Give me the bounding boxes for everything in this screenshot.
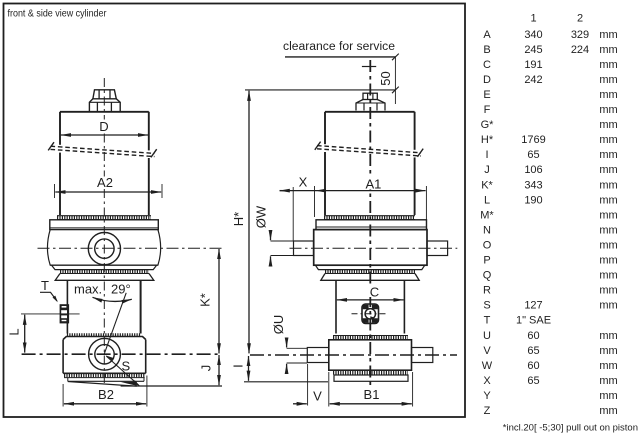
svg-text:mm: mm [599,209,617,221]
svg-text:H*: H* [481,134,494,146]
svg-text:E: E [483,89,490,101]
svg-text:max.: max. [74,282,102,297]
svg-text:mm: mm [599,194,617,206]
svg-text:mm: mm [599,375,617,387]
svg-text:U: U [483,330,491,342]
svg-text:mm: mm [599,44,617,56]
svg-text:mm: mm [599,360,617,372]
svg-text:A1: A1 [365,176,381,191]
svg-text:mm: mm [599,134,617,146]
svg-text:X: X [299,175,308,190]
svg-text:343: 343 [524,179,542,191]
svg-text:B1: B1 [364,387,380,402]
svg-text:mm: mm [599,179,617,191]
svg-text:mm: mm [599,240,617,252]
svg-text:B: B [483,44,490,56]
svg-text:329: 329 [571,29,589,41]
svg-text:29°: 29° [111,282,131,297]
svg-text:mm: mm [599,224,617,236]
svg-text:S: S [122,359,131,374]
svg-text:mm: mm [599,29,617,41]
svg-text:I: I [230,364,245,368]
svg-text:mm: mm [599,119,617,131]
svg-text:G*: G* [481,119,495,131]
svg-text:60: 60 [527,360,539,372]
svg-text:front & side view cylinder: front & side view cylinder [8,8,107,20]
svg-text:mm: mm [599,59,617,71]
svg-text:191: 191 [524,59,542,71]
svg-text:D: D [99,119,108,134]
svg-text:mm: mm [599,285,617,297]
svg-text:I: I [485,149,488,161]
svg-text:1769: 1769 [521,134,545,146]
svg-text:65: 65 [527,375,539,387]
svg-text:50: 50 [378,71,393,85]
svg-text:ØW: ØW [253,205,268,228]
svg-text:P: P [483,255,490,267]
svg-text:*incl.20[ -5;30] pull out on p: *incl.20[ -5;30] pull out on piston [503,423,638,434]
svg-text:O: O [483,240,492,252]
svg-text:mm: mm [599,74,617,86]
svg-text:X: X [483,375,491,387]
svg-text:B2: B2 [98,387,114,402]
svg-text:V: V [483,345,491,357]
svg-text:242: 242 [524,74,542,86]
svg-text:340: 340 [524,29,542,41]
svg-text:65: 65 [527,345,539,357]
svg-text:65: 65 [527,149,539,161]
svg-text:S: S [483,300,490,312]
svg-text:224: 224 [571,44,589,56]
svg-text:2: 2 [577,13,583,25]
svg-text:W: W [482,360,493,372]
svg-text:A: A [483,29,491,41]
svg-text:60: 60 [527,330,539,342]
svg-text:T: T [484,315,491,327]
svg-text:M*: M* [480,209,494,221]
svg-text:mm: mm [599,270,617,282]
svg-text:K*: K* [481,179,493,191]
svg-text:106: 106 [524,164,542,176]
svg-text:C: C [483,59,491,71]
svg-text:245: 245 [524,44,542,56]
svg-text:A2: A2 [97,175,113,190]
svg-text:mm: mm [599,330,617,342]
svg-text:clearance for service: clearance for service [283,41,395,53]
svg-text:C: C [370,285,379,300]
svg-text:mm: mm [599,164,617,176]
svg-text:J: J [484,164,490,176]
svg-text:D: D [483,74,491,86]
svg-text:mm: mm [599,104,617,116]
svg-text:mm: mm [599,89,617,101]
svg-text:V: V [313,389,322,404]
svg-text:N: N [483,224,491,236]
svg-text:K*: K* [197,293,212,307]
svg-text:Y: Y [483,390,491,402]
svg-text:mm: mm [599,405,617,417]
svg-text:Z: Z [484,405,491,417]
svg-text:mm: mm [599,390,617,402]
svg-text:127: 127 [524,300,542,312]
svg-text:mm: mm [599,255,617,267]
svg-text:1: 1 [530,13,536,25]
svg-text:1" SAE: 1" SAE [516,315,551,327]
svg-text:Q: Q [483,270,492,282]
svg-text:T: T [41,278,49,293]
svg-text:L: L [484,194,490,206]
svg-text:190: 190 [524,194,542,206]
svg-text:mm: mm [599,149,617,161]
svg-text:H*: H* [231,212,246,226]
svg-text:mm: mm [599,345,617,357]
svg-text:R: R [483,285,491,297]
svg-text:L: L [6,328,21,335]
svg-text:mm: mm [599,300,617,312]
svg-text:J: J [198,365,213,372]
svg-text:F: F [484,104,491,116]
svg-text:ØU: ØU [271,315,286,335]
